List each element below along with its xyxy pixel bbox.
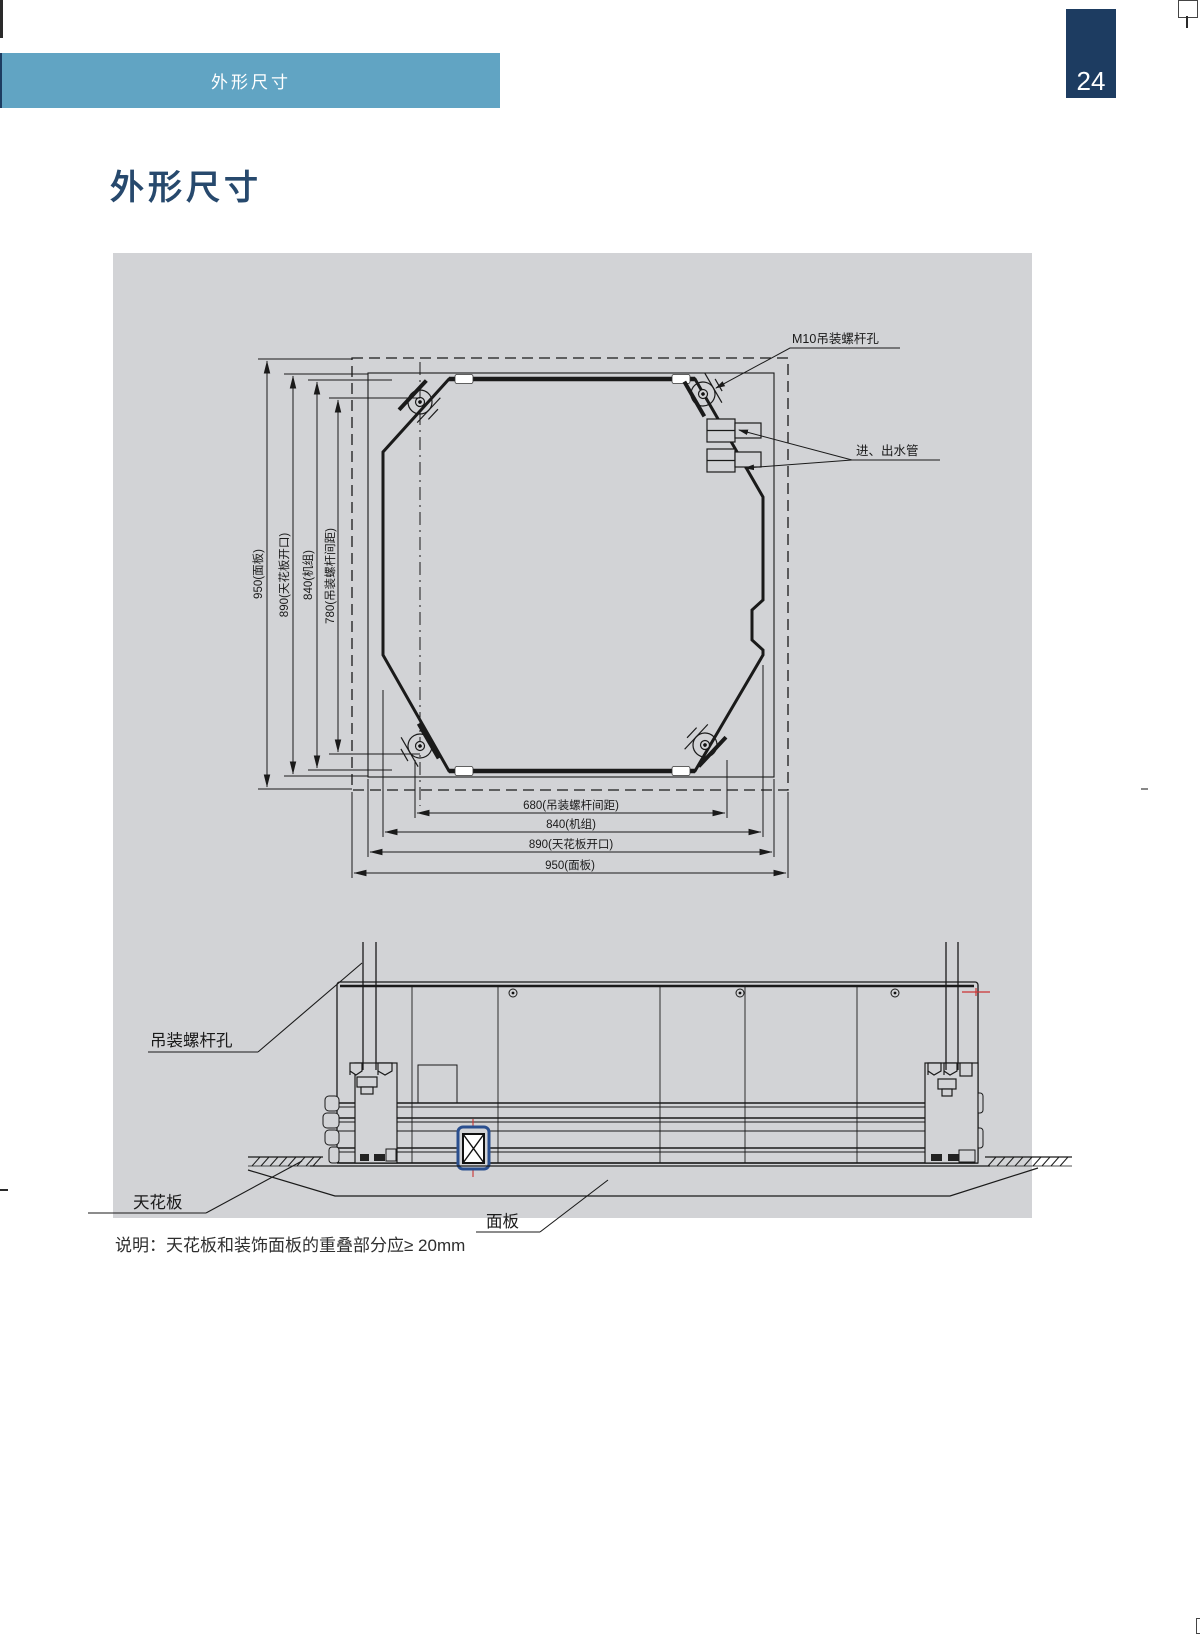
hanger-bracket-right-side — [925, 1063, 978, 1163]
dimension-drawing: 950(面板) 890(天花板开口) 840(机组) 780(吊装螺杆间距) 6… — [0, 0, 1200, 1635]
label-ceiling: 天花板 — [133, 1193, 183, 1212]
dim-label-840-unit-h: 840(机组) — [546, 817, 596, 831]
dim-label-680-rod-pitch-h: 680(吊装螺杆间距) — [523, 798, 619, 812]
hanger-bracket-left-side — [350, 1063, 397, 1163]
drawing-note: 说明：天花板和装饰面板的重叠部分应≥ 20mm — [115, 1236, 465, 1255]
dim-label-890-opening-v: 890(天花板开口) — [277, 533, 291, 618]
drain-pump-component — [458, 1119, 489, 1177]
annotation-pipes-label: 进、出水管 — [856, 443, 919, 458]
label-hanging-rod-hole: 吊装螺杆孔 — [150, 1031, 233, 1050]
dim-label-890-opening-h: 890(天花板开口) — [529, 837, 614, 851]
dim-label-950-panel-v: 950(面板) — [251, 549, 265, 599]
dim-label-950-panel-h: 950(面板) — [545, 858, 595, 872]
dim-label-840-unit-v: 840(机组) — [301, 550, 315, 600]
label-panel: 面板 — [486, 1212, 519, 1231]
annotation-m10-label: M10吊装螺杆孔 — [792, 332, 879, 346]
dim-label-780-rod-pitch-v: 780(吊装螺杆间距) — [323, 528, 337, 624]
drawing-panel-background — [113, 253, 1032, 1218]
